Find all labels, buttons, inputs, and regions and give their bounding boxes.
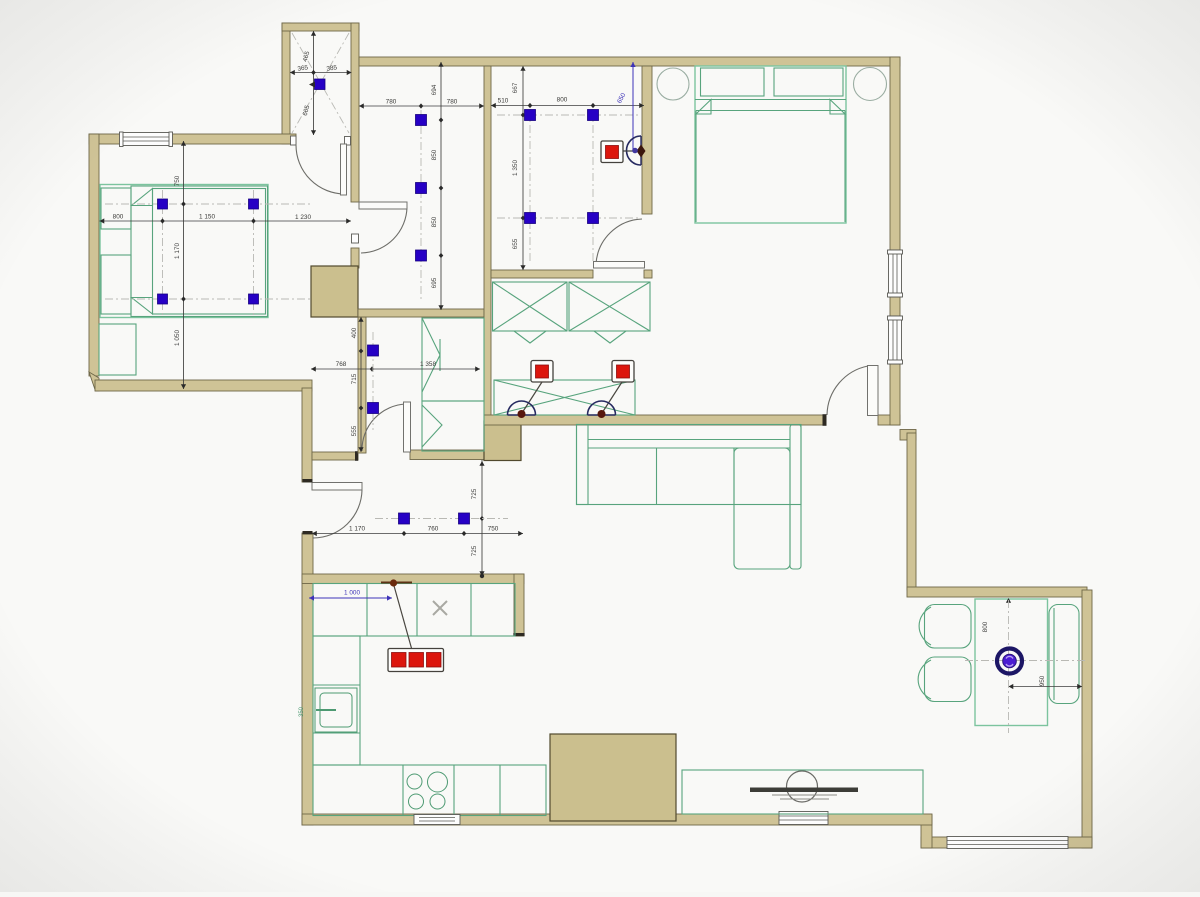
svg-text:850: 850 xyxy=(431,216,438,227)
svg-text:1 150: 1 150 xyxy=(199,214,215,221)
svg-text:800: 800 xyxy=(557,97,568,104)
svg-text:760: 760 xyxy=(428,526,439,533)
svg-text:350: 350 xyxy=(299,706,305,717)
svg-text:1 050: 1 050 xyxy=(174,330,181,346)
svg-text:750: 750 xyxy=(174,175,181,186)
svg-text:1 230: 1 230 xyxy=(295,214,311,221)
svg-text:780: 780 xyxy=(447,99,458,106)
svg-text:780: 780 xyxy=(386,99,397,106)
svg-text:1 170: 1 170 xyxy=(174,243,181,259)
svg-text:725: 725 xyxy=(471,488,478,499)
svg-text:750: 750 xyxy=(488,526,499,533)
svg-text:800: 800 xyxy=(982,621,989,632)
svg-text:1 358: 1 358 xyxy=(420,361,436,368)
svg-text:667: 667 xyxy=(512,82,519,93)
svg-text:1 000: 1 000 xyxy=(344,590,360,597)
svg-text:694: 694 xyxy=(431,84,438,95)
svg-text:768: 768 xyxy=(336,361,347,368)
svg-text:800: 800 xyxy=(113,214,124,221)
svg-text:850: 850 xyxy=(431,149,438,160)
svg-text:725: 725 xyxy=(471,545,478,556)
svg-text:715: 715 xyxy=(351,373,358,384)
svg-text:950: 950 xyxy=(1039,675,1046,686)
svg-text:555: 555 xyxy=(351,425,358,436)
svg-text:1 350: 1 350 xyxy=(512,160,519,176)
svg-text:695: 695 xyxy=(431,277,438,288)
svg-text:510: 510 xyxy=(498,98,509,105)
svg-text:1 170: 1 170 xyxy=(349,526,365,533)
svg-text:400: 400 xyxy=(351,327,358,338)
svg-text:655: 655 xyxy=(512,238,519,249)
